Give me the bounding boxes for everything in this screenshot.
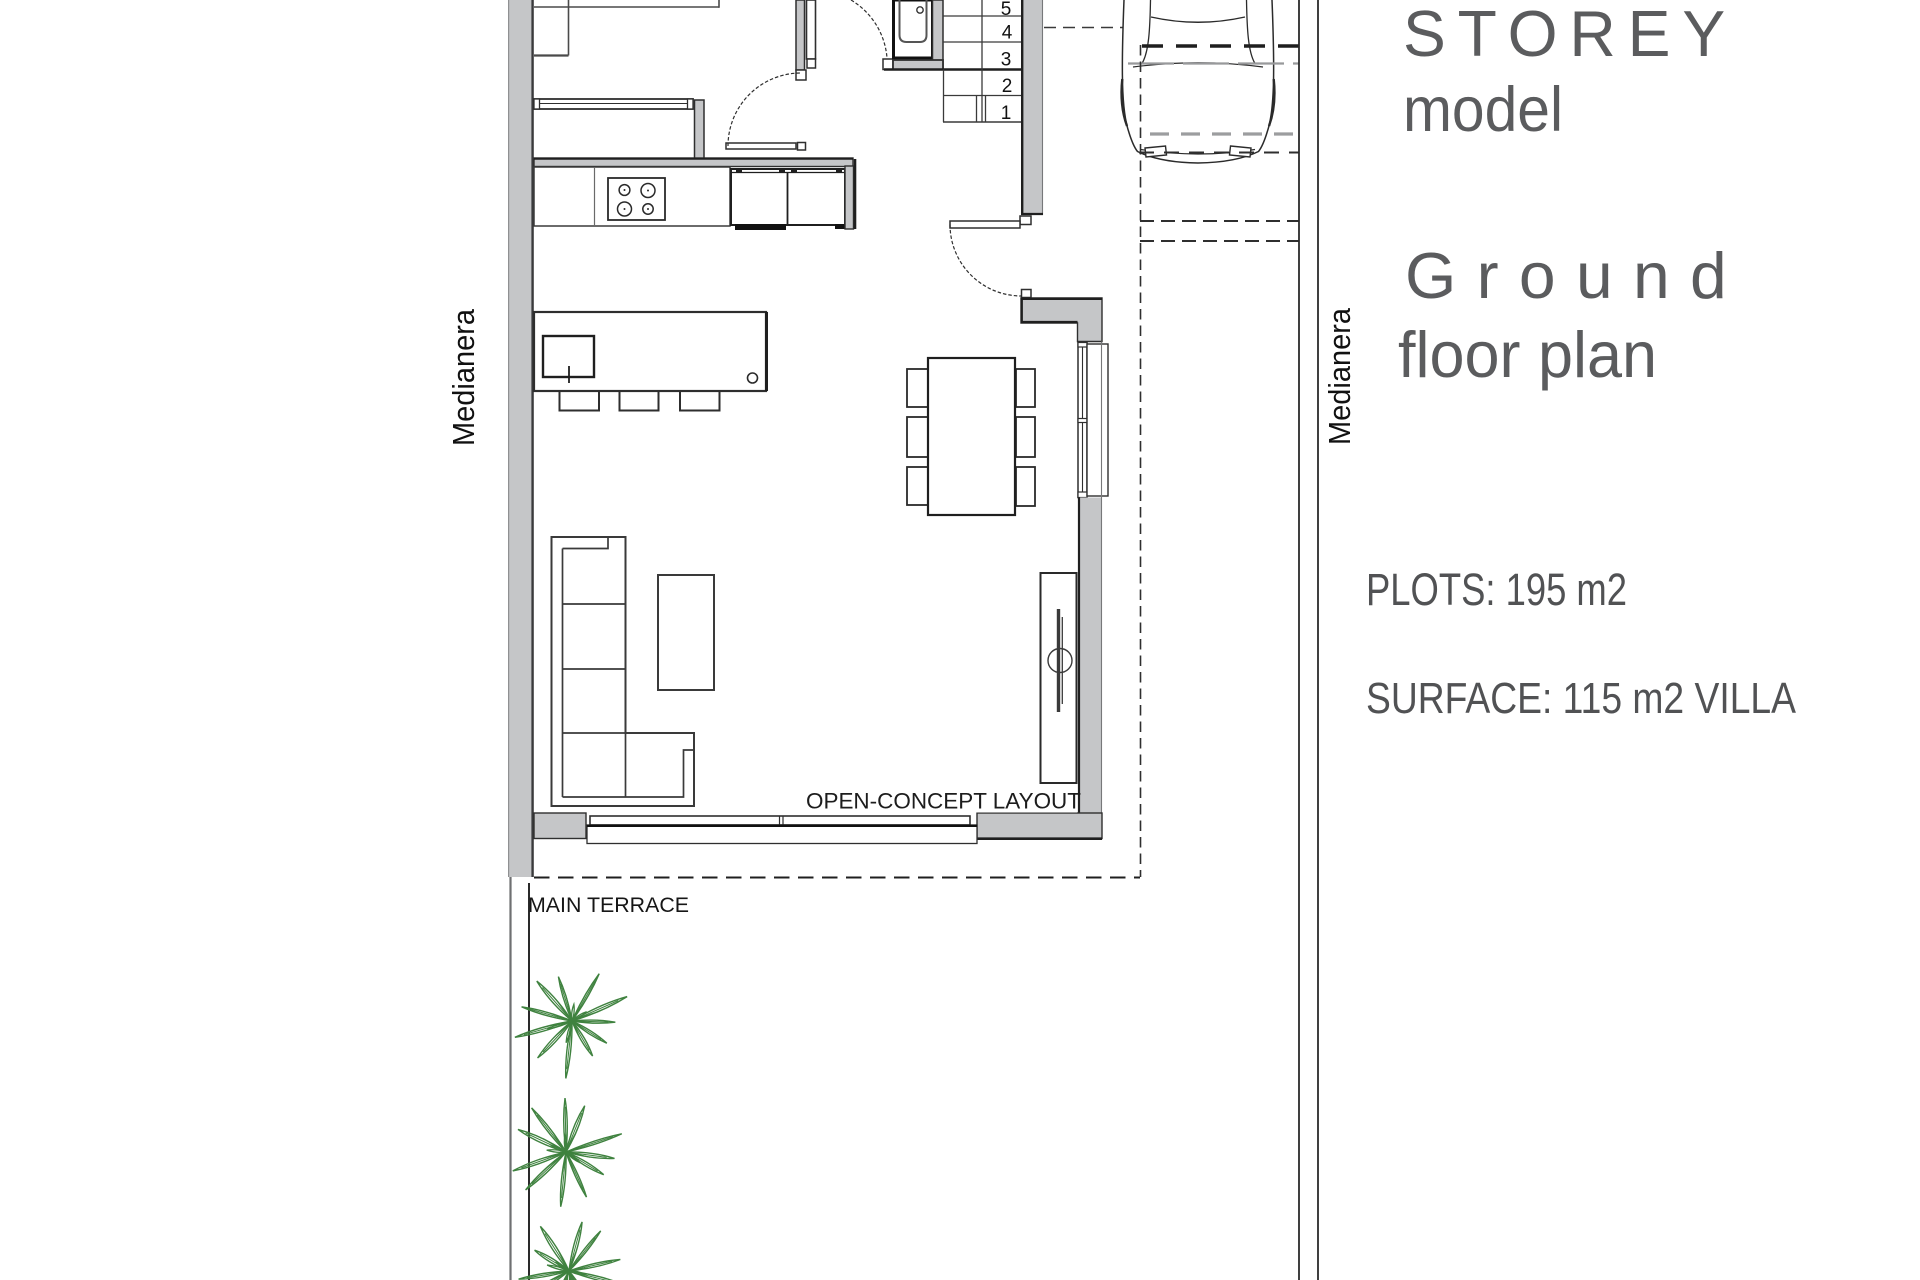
svg-text:PLOTS: 195 m2: PLOTS: 195 m2 <box>1366 564 1627 615</box>
svg-text:STOREY: STOREY <box>1403 0 1737 70</box>
svg-text:OPEN-CONCEPT LAYOUT: OPEN-CONCEPT LAYOUT <box>806 789 1081 814</box>
svg-text:MAIN TERRACE: MAIN TERRACE <box>528 893 689 917</box>
svg-text:Medianera: Medianera <box>1323 308 1357 445</box>
svg-text:4: 4 <box>1002 23 1013 44</box>
svg-text:model: model <box>1403 75 1563 145</box>
svg-text:2: 2 <box>1002 76 1013 97</box>
svg-text:3: 3 <box>1001 50 1012 71</box>
svg-text:SURFACE: 115 m2 VILLA: SURFACE: 115 m2 VILLA <box>1366 674 1797 723</box>
svg-text:Medianera: Medianera <box>447 309 481 446</box>
svg-text:floor plan: floor plan <box>1398 318 1657 391</box>
svg-text:5: 5 <box>1001 0 1012 20</box>
svg-text:Ground: Ground <box>1405 239 1747 312</box>
svg-text:1: 1 <box>1001 103 1012 124</box>
